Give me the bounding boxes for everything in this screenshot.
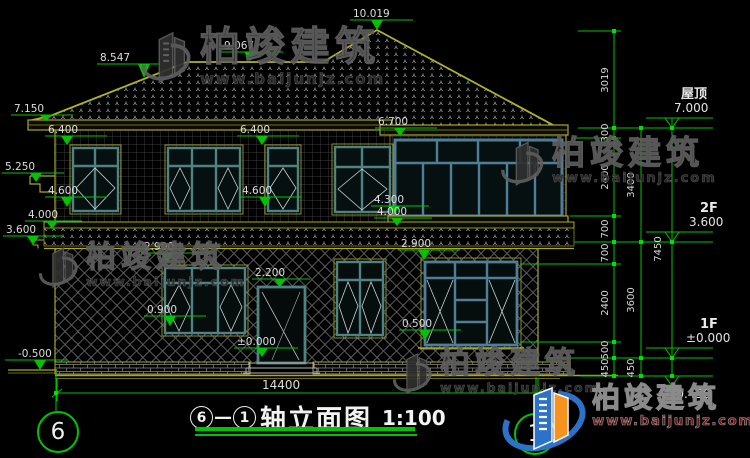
total-width-dimension: 14400 — [262, 378, 300, 392]
chain-dim-label: 3400 — [626, 172, 637, 197]
marker-triangle — [30, 173, 42, 182]
axis-bubble-6: 6 — [37, 411, 79, 453]
dim-label: 2.200 — [255, 267, 285, 279]
chain-dim-label: 3019 — [600, 67, 611, 92]
dim-label: 5.250 — [5, 161, 35, 173]
brand-logo-text: 柏竣建筑 — [592, 383, 750, 412]
chain-dim-label: 2400 — [600, 164, 611, 189]
belt-course — [33, 222, 574, 249]
title-underline-thick — [195, 427, 415, 431]
chain-dim-label: 300 — [600, 123, 611, 142]
chain-dim-label: 2400 — [600, 290, 611, 315]
dim-label: 4.300 — [374, 194, 404, 206]
title-axis-end: 1 — [233, 406, 256, 429]
brand-logo-url: www.baijunjz.com — [592, 413, 750, 429]
dim-label: 4.600 — [242, 185, 272, 197]
title-axis-start: 6 — [190, 406, 213, 429]
level-name: 2F — [700, 201, 718, 216]
level-value: 3.600 — [689, 215, 723, 229]
marker-triangle — [371, 20, 383, 30]
axis-number-left: 6 — [51, 419, 66, 445]
title-scale: 1:100 — [382, 406, 446, 430]
dim-label: 2.900 — [401, 238, 431, 250]
chain-dim-label: 3600 — [626, 287, 637, 312]
roof — [28, 30, 568, 135]
chain-dim-label: 700 — [600, 219, 611, 238]
dim-label: -0.500 — [18, 348, 52, 360]
dim-label: 6.400 — [48, 124, 78, 136]
dim-label: 7.150 — [14, 103, 44, 115]
dim-label: ±0.000 — [237, 336, 276, 348]
vertical-dimension-labels: 3019300240070070024005004503400360045074… — [600, 67, 664, 377]
title-dash: — — [214, 407, 232, 428]
dim-label: 0.900 — [147, 304, 177, 316]
title-underline-thin — [195, 434, 417, 436]
chain-dim-label: 450 — [626, 358, 637, 377]
dim-label: 2.900 — [144, 241, 174, 253]
right-level-labels: 屋顶7.0002F3.6001F±0.000-0.450 — [672, 87, 730, 401]
dim-label: 6.700 — [378, 116, 408, 128]
dim-label: 10.019 — [353, 8, 390, 20]
dim-label: 3.600 — [6, 224, 36, 236]
marker-triangle — [138, 64, 150, 78]
chain-dim-label: 450 — [600, 358, 611, 377]
dim-label: 0.500 — [402, 318, 432, 330]
marker-triangle — [34, 360, 46, 370]
dim-label: 4.000 — [377, 206, 407, 218]
chain-dim-label: 500 — [600, 340, 611, 359]
dim-label: 9.067 — [224, 40, 254, 52]
brand-logo-icon — [498, 383, 590, 455]
dim-label: 4.600 — [48, 185, 78, 197]
dim-label: 4.000 — [28, 209, 58, 221]
level-name: 屋顶 — [681, 87, 707, 102]
plinth-and-ground — [8, 362, 618, 379]
dim-label: 8.547 — [100, 52, 130, 64]
elevation-drawing-canvas: 10.0199.0678.5477.1506.4006.4006.7005.25… — [0, 0, 750, 458]
dim-label: 6.400 — [240, 124, 270, 136]
brand-logo: 柏竣建筑 www.baijunjz.com — [498, 383, 750, 455]
level-value: ±0.000 — [686, 331, 730, 345]
chain-dim-label: 700 — [600, 243, 611, 262]
chain-dim-label: 7450 — [653, 236, 664, 261]
level-value: 7.000 — [674, 101, 708, 115]
marker-triangle — [244, 52, 256, 61]
level-name: 1F — [700, 317, 718, 332]
